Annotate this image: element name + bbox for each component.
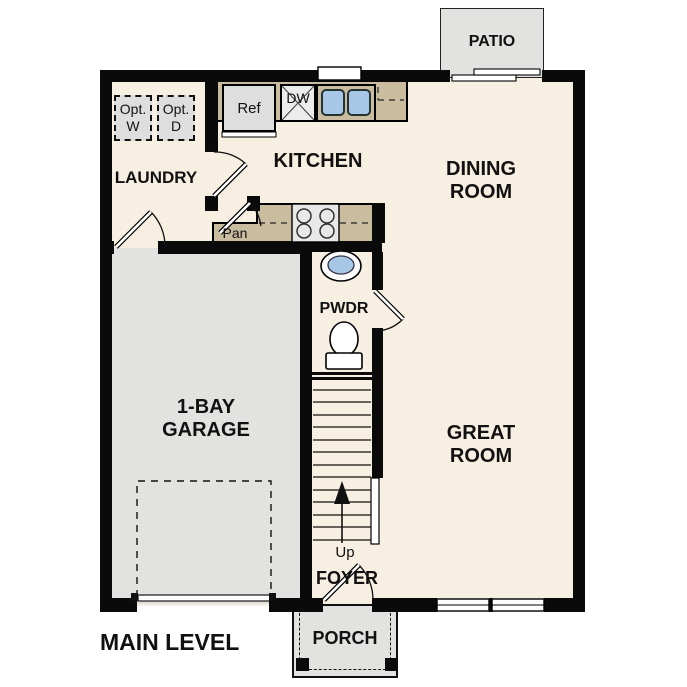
- pantry-label: Pan: [214, 225, 256, 241]
- dining-room-label-2: ROOM: [450, 181, 512, 203]
- wall-powder-right-upper: [372, 252, 383, 290]
- wall-bottom-right: [544, 598, 585, 612]
- wall-laundry-kitchen-stub: [205, 76, 218, 152]
- wall-stair-right: [372, 374, 383, 478]
- up-label: Up: [330, 544, 360, 561]
- patio-label: PATIO: [440, 33, 544, 51]
- wall-laundry-bottom-jamb: [100, 241, 114, 254]
- garage-label-2: GARAGE: [162, 419, 250, 441]
- kitchen-counter-lower: [256, 203, 374, 243]
- wall-counter-right-jamb: [372, 203, 385, 243]
- great-room-label: GREAT ROOM: [431, 422, 531, 468]
- wall-bottom-garage-left: [100, 598, 137, 612]
- kitchen-label: KITCHEN: [258, 150, 378, 173]
- wall-bottom-window-mullion: [489, 598, 493, 612]
- optional-dryer-label-2: D: [171, 118, 181, 134]
- main-level-title: MAIN LEVEL: [100, 629, 320, 656]
- optional-washer-box: Opt. W: [114, 95, 152, 141]
- porch-post-left: [296, 658, 309, 671]
- sink-basin-right: [347, 89, 371, 116]
- great-room-label-1: GREAT: [447, 422, 516, 444]
- wall-left: [100, 70, 112, 612]
- optional-washer-label-2: W: [126, 118, 139, 134]
- dining-room-label: DINING ROOM: [431, 158, 531, 204]
- floor-plan: Opt. W Opt. D: [0, 0, 687, 687]
- wall-top-left: [100, 70, 450, 82]
- optional-washer-label-1: Opt.: [120, 101, 146, 117]
- dw-label: DW: [280, 90, 316, 106]
- powder-room-label: PWDR: [315, 300, 373, 318]
- sink-basin-left: [321, 89, 345, 116]
- laundry-label: LAUNDRY: [106, 168, 206, 188]
- wall-stair-top-line-a: [312, 372, 372, 375]
- optional-dryer-label-1: Opt.: [163, 101, 189, 117]
- dining-room-label-1: DINING: [446, 158, 516, 180]
- wall-powder-top: [302, 241, 382, 252]
- wall-pantry-jamb-right: [247, 196, 260, 211]
- wall-stair-top-line-b: [312, 377, 372, 380]
- optional-dryer-box: Opt. D: [157, 95, 195, 141]
- ref-label: Ref: [222, 100, 276, 117]
- porch-post-right: [385, 658, 398, 671]
- great-room-label-2: ROOM: [450, 445, 512, 467]
- wall-garage-right: [300, 241, 312, 604]
- wall-bottom-foyer-left: [269, 598, 323, 612]
- foyer-label: FOYER: [316, 568, 378, 589]
- garage-label: 1-BAY GARAGE: [146, 396, 266, 442]
- wall-pantry-jamb-left: [205, 196, 218, 211]
- wall-garage-top: [158, 241, 302, 254]
- garage-label-1: 1-BAY: [177, 396, 235, 418]
- wall-bottom-greatroom-left: [372, 598, 437, 612]
- wall-powder-right-lower: [372, 328, 383, 374]
- wall-right: [573, 70, 585, 612]
